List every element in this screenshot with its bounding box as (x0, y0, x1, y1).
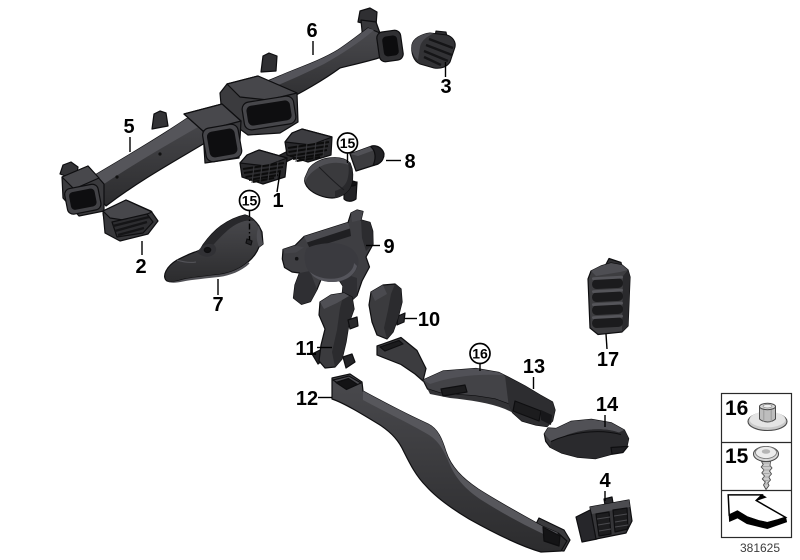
svg-text:16: 16 (725, 397, 748, 420)
svg-text:8: 8 (404, 151, 415, 173)
svg-text:1: 1 (272, 190, 283, 212)
svg-text:15: 15 (242, 193, 258, 209)
svg-text:381625: 381625 (740, 541, 780, 555)
svg-text:3: 3 (440, 76, 451, 98)
svg-text:2: 2 (135, 256, 146, 278)
svg-text:4: 4 (599, 470, 611, 492)
svg-text:15: 15 (725, 445, 749, 468)
svg-text:7: 7 (212, 294, 223, 316)
svg-text:15: 15 (340, 135, 356, 151)
svg-text:6: 6 (306, 20, 317, 42)
svg-text:10: 10 (418, 309, 440, 331)
svg-text:11: 11 (295, 338, 316, 360)
svg-text:12: 12 (296, 388, 318, 410)
svg-text:17: 17 (597, 349, 619, 371)
svg-text:14: 14 (596, 394, 619, 416)
svg-text:16: 16 (472, 346, 488, 362)
svg-text:5: 5 (123, 116, 134, 138)
svg-text:13: 13 (523, 356, 545, 378)
svg-text:9: 9 (383, 236, 394, 258)
